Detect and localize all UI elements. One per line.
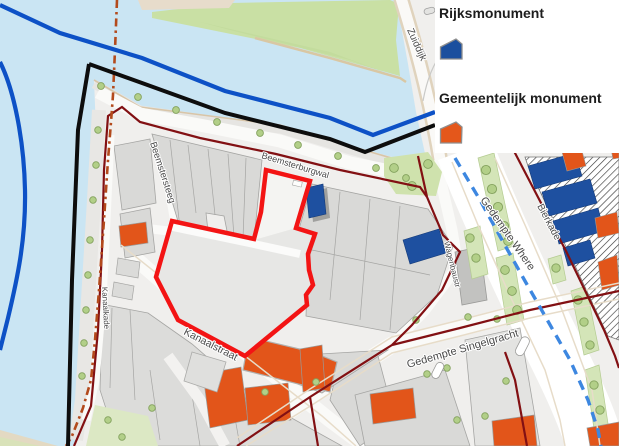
svg-text:Gemeentelijk monument: Gemeentelijk monument bbox=[439, 90, 602, 106]
svg-text:Rijksmonument: Rijksmonument bbox=[439, 5, 544, 21]
